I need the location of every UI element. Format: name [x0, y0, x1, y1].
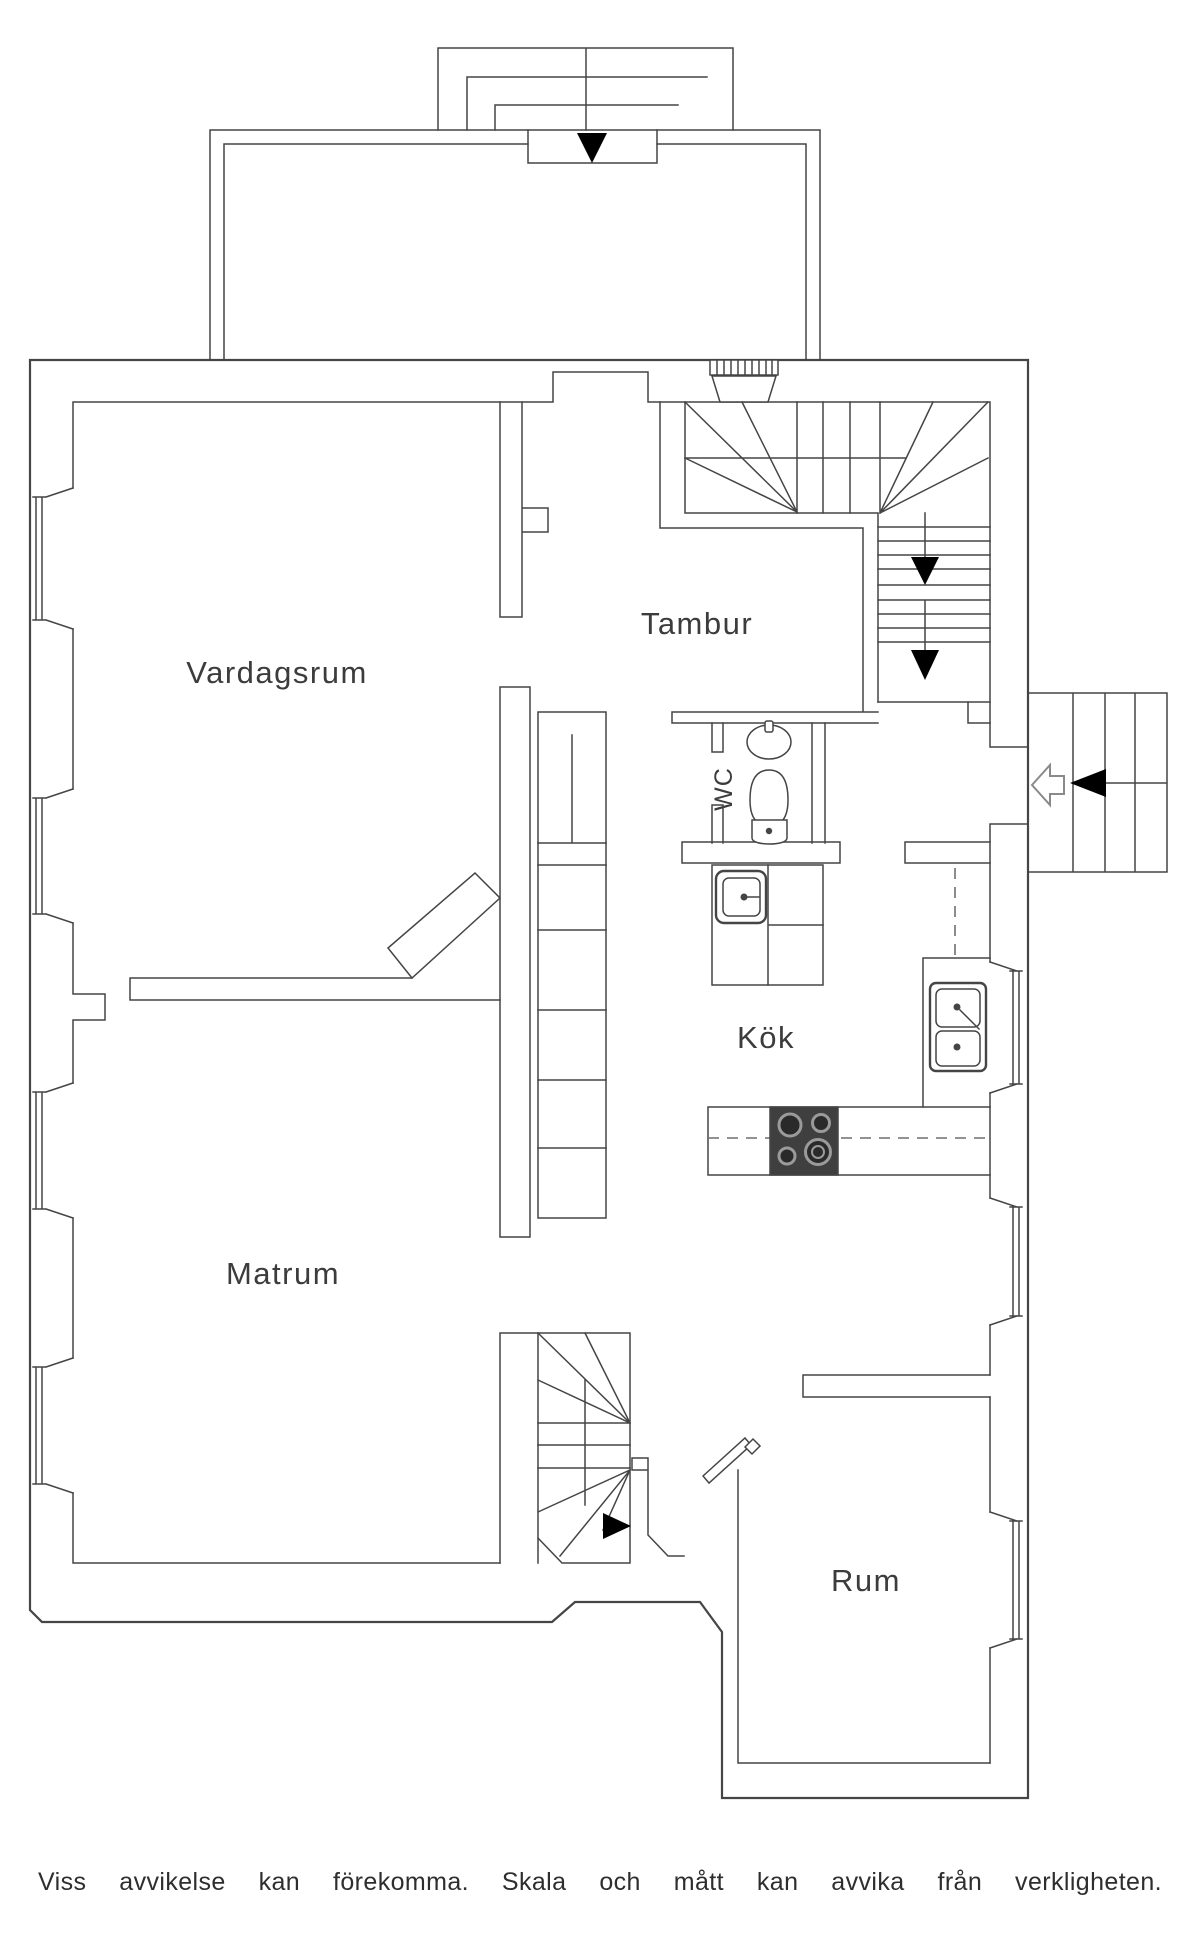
- windows-right: [990, 962, 1022, 1648]
- room-label-tambur: Tambur: [641, 606, 753, 641]
- wc-toilet: [750, 770, 788, 844]
- window-icon: [990, 1512, 1022, 1648]
- basement-stair-arrow-right-icon: [603, 1513, 631, 1539]
- stove: [770, 1107, 838, 1175]
- wc-fixtures: [747, 721, 791, 844]
- rum-door-leaf: [703, 1438, 751, 1483]
- wc-sink: [747, 721, 791, 759]
- floor-plan-drawing: Vardagsrum Tambur WC Kök Matrum Rum: [0, 0, 1200, 1830]
- entry-arrow-down-icon: [577, 133, 607, 163]
- side-entrance-stair: [1028, 693, 1167, 872]
- entry-steps: [438, 48, 733, 130]
- room-label-wc: WC: [710, 767, 738, 811]
- door-swing-arrow-icon: [1032, 765, 1064, 805]
- chimney: [710, 360, 778, 402]
- closet-shelves: [538, 712, 606, 1218]
- kitchen-counter-lower: [708, 1107, 990, 1175]
- interior-walls: [130, 402, 990, 1763]
- window-icon: [33, 789, 73, 923]
- room-labels: Vardagsrum Tambur WC Kök Matrum Rum: [186, 606, 901, 1598]
- main-staircase: [685, 402, 990, 702]
- room-label-matrum: Matrum: [226, 1256, 340, 1291]
- disclaimer-text: Viss avvikelse kan förekomma. Skala och …: [38, 1868, 1162, 1897]
- floor-plan-page: Vardagsrum Tambur WC Kök Matrum Rum Viss…: [0, 0, 1200, 1952]
- room-label-rum: Rum: [831, 1563, 901, 1598]
- room-label-kok: Kök: [737, 1020, 795, 1055]
- windows-left: [33, 488, 73, 1493]
- side-entry-arrow-left-icon: [1070, 769, 1106, 797]
- window-icon: [990, 1198, 1022, 1325]
- stair-down-arrow-icon: [911, 650, 939, 680]
- corner-fireplace: [388, 873, 500, 978]
- basement-staircase: [500, 1333, 631, 1563]
- window-icon: [33, 1358, 73, 1493]
- kitchen-counter-upper: [712, 865, 823, 985]
- kitchen-counter-right: [923, 868, 990, 1107]
- window-icon: [990, 962, 1022, 1093]
- stair-down-arrow-icon: [911, 557, 939, 585]
- porch: [210, 48, 820, 360]
- window-icon: [33, 1083, 73, 1218]
- room-label-vardagsrum: Vardagsrum: [186, 655, 368, 690]
- window-icon: [33, 488, 73, 629]
